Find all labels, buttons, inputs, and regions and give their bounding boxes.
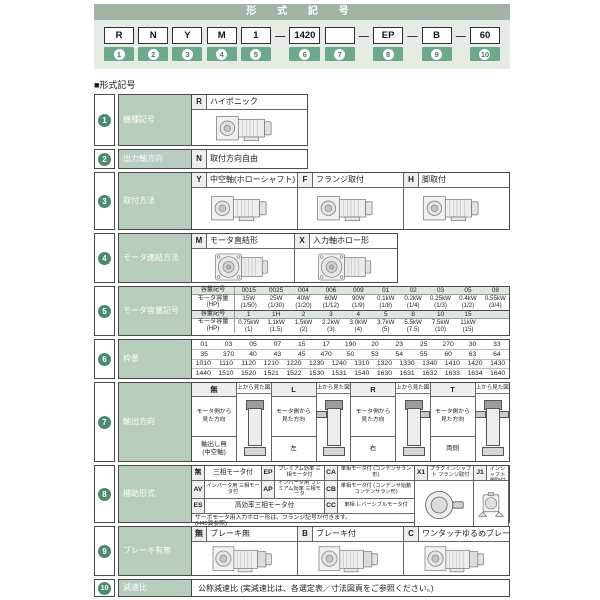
capacity-value-cell: 25W (1/30) xyxy=(262,295,289,309)
frame-number: 1330 xyxy=(396,360,419,367)
motor-base-shape xyxy=(323,447,345,456)
code-cell: EP xyxy=(262,466,275,481)
capacity-value-cell: 3.0kW (4) xyxy=(345,319,372,333)
view-from-motor-label: モータ側から 見た方向 xyxy=(192,397,236,437)
capacity-code-cell: 10 xyxy=(427,311,454,318)
code-desc: ブレーキ付 xyxy=(313,527,403,541)
frame-number: 1230 xyxy=(305,360,328,367)
gearmotor-side-image xyxy=(192,110,307,148)
dash-separator: — xyxy=(275,31,285,42)
capacity-code-cell: 2 xyxy=(290,311,317,318)
code-box-stack: R 1 xyxy=(104,27,134,61)
capacity-code-cell: 004 xyxy=(290,287,317,294)
code-desc: フランジ取付 xyxy=(313,173,403,187)
code-cell: AV xyxy=(192,481,205,499)
frame-number: 05 xyxy=(241,341,265,348)
frame-number: 370 xyxy=(216,351,240,358)
code-badge-7: 7 xyxy=(325,47,355,61)
code-desc: 取付方向自由 xyxy=(207,150,307,168)
frame-number: 43 xyxy=(265,351,289,358)
code-desc: インバータ用 三相モータ付 xyxy=(205,481,262,499)
row-auxiliary-type: 8 補助形式 無 三相モータ付 EP プレミアム効率 三相モータ付 CA 単相モ… xyxy=(94,465,510,523)
code-desc: モータ直結形 xyxy=(207,234,294,248)
row-machine-type: 1 機種記号 R ハイポニック xyxy=(94,94,510,146)
coupling-option: M モータ直結形 xyxy=(192,234,295,282)
frame-number: 64 xyxy=(485,351,509,358)
shaft-direction-option: T モータ側から 見た方向 両側 上から見た図 xyxy=(431,383,510,461)
code-box-5: 1 xyxy=(241,27,271,44)
capacity-section-2: 容量記号 11H234581015 モータ容量 (HP) xyxy=(192,311,509,334)
motor-body-shape xyxy=(407,408,421,446)
code-box-9: B xyxy=(422,27,452,44)
direction-sublabel: (中空軸) xyxy=(202,449,225,457)
capacity-value-cell: 7.5kW (10) xyxy=(427,319,454,333)
shaft-left-stub xyxy=(475,411,486,418)
brake-option: B ブレーキ付 xyxy=(298,527,404,575)
frame-number: 1510 xyxy=(215,370,238,377)
code-cell: CC xyxy=(325,499,338,514)
capacity-code-cell: 15 xyxy=(454,311,481,318)
code-cell: J1 xyxy=(474,466,487,481)
capacity-value-cell: 90W (1/9) xyxy=(345,295,372,309)
code-box-stack: 60 10 xyxy=(470,27,500,61)
capacity-code-cell: 05 xyxy=(454,287,481,294)
code-desc: インバータ用 プレミアム効率 三相モータ xyxy=(275,481,325,499)
code-cell: N xyxy=(192,150,207,168)
code-badge-2: 2 xyxy=(138,47,168,61)
code-desc: 入力軸ホロー形 xyxy=(310,234,397,248)
capacity-value-cell xyxy=(482,319,509,333)
plugin-shaft-image xyxy=(415,481,474,529)
motor-body-shape xyxy=(327,408,341,446)
capacity-value-cell: 5.5kW (7.5) xyxy=(399,319,426,333)
frame-number: 1440 xyxy=(192,370,215,377)
row-number-badge: 9 xyxy=(94,526,115,576)
direction-label: 左 xyxy=(290,445,296,453)
code-cell: AP xyxy=(262,481,275,499)
frame-number: 1632 xyxy=(418,370,441,377)
motor-base-shape xyxy=(482,447,504,456)
code-cell: CA xyxy=(325,466,338,481)
frame-number: 1410 xyxy=(441,360,464,367)
code-box-7-empty xyxy=(325,27,355,44)
brake-gearmotor-image xyxy=(298,542,403,578)
frame-number: 15 xyxy=(290,341,314,348)
frame-number: 1120 xyxy=(237,360,260,367)
row-number-badge: 4 xyxy=(94,233,115,283)
capacity-code-cell: 009 xyxy=(345,287,372,294)
capacity-code-cells: 11H234581015 xyxy=(235,311,509,318)
frame-number: 1110 xyxy=(215,360,238,367)
capacity-value-cell: 40W (1/20) xyxy=(290,295,317,309)
capacity-code-cell: 8 xyxy=(399,311,426,318)
frame-number: 1520 xyxy=(237,370,260,377)
top-view-diagram xyxy=(318,400,348,456)
capacity-value-cell: 2.2kW (3) xyxy=(317,319,344,333)
capacity-value-cell: 1.1kW (1.5) xyxy=(262,319,289,333)
frame-number: 1320 xyxy=(373,360,396,367)
code-desc: 単相モータ付 (コンデンサ始動コンデンサラン形) xyxy=(338,481,415,499)
capacity-code-cell: 3 xyxy=(317,311,344,318)
row-number-badge: 2 xyxy=(94,149,115,169)
frame-number: 23 xyxy=(387,341,411,348)
capacity-value-cell: 0.1kW (1/8) xyxy=(372,295,399,309)
row-label: 軸出方向 xyxy=(119,383,192,461)
frame-number: 01 xyxy=(192,341,216,348)
row-label: ブレーキ有無 xyxy=(119,527,192,575)
code-desc: プレミアム効率 三相モータ付 xyxy=(275,466,325,481)
gearmotor-illustration xyxy=(316,544,386,576)
frame-number: 1340 xyxy=(418,360,441,367)
frame-number: 53 xyxy=(363,351,387,358)
top-view-diagram xyxy=(477,400,507,456)
capacity-code-header: 容量記号 xyxy=(192,311,235,318)
view-from-motor-label: モータ側から 見た方向 xyxy=(351,397,395,437)
frame-number: 1634 xyxy=(464,370,487,377)
frame-number: 30 xyxy=(460,341,484,348)
frame-number: 1310 xyxy=(350,360,373,367)
top-view-diagram xyxy=(239,400,269,456)
row-reduction-ratio: 10 減速比 公称減速比 (実減速比は、各選定表／寸法図頁をご参照ください。) xyxy=(94,579,510,597)
dash-separator: — xyxy=(359,31,369,42)
capacity-code-header: 容量記号 xyxy=(192,287,235,294)
frame-number-grid: 0103050715171902023252703033 35370404345… xyxy=(192,340,509,378)
code-badge-3: 3 xyxy=(172,47,202,61)
capacity-code-cell: 03 xyxy=(427,287,454,294)
code-desc: ワンタッチゆるめブレーキ付 xyxy=(419,527,509,541)
frame-number-row: 0103050715171902023252703033 xyxy=(192,340,509,350)
view-from-motor-label: モータ側から 見た方向 xyxy=(272,397,316,437)
code-badge-9: 9 xyxy=(422,47,452,61)
row-mounting-method: 3 取付方法 Y 中空軸(ホローシャフト) xyxy=(94,172,510,230)
capacity-value-cell: 11kW (15) xyxy=(454,319,481,333)
frame-number-row: 1440151015201521152215301531154016301631… xyxy=(192,369,509,378)
row-label: 枠番 xyxy=(119,340,192,378)
frame-number: 1522 xyxy=(283,370,306,377)
capacity-value-header: モータ容量 (HP) xyxy=(192,319,235,333)
coupling-option: X 入力軸ホロー形 xyxy=(295,234,397,282)
frame-number: 63 xyxy=(460,351,484,358)
code-badge-8: 8 xyxy=(373,47,403,61)
brake-gearmotor-image xyxy=(404,542,509,578)
code-cell: X xyxy=(295,234,310,248)
code-desc: 脚取付 xyxy=(419,173,509,187)
capacity-code-cell: 1 xyxy=(235,311,262,318)
capacity-code-cell: 1H xyxy=(262,311,289,318)
frame-number: 07 xyxy=(265,341,289,348)
code-box-6: 1420 xyxy=(289,27,320,44)
code-badge-1: 1 xyxy=(104,47,134,61)
code-desc: 高効率三相モータ付 xyxy=(205,499,325,514)
code-box-stack: M 4 xyxy=(207,27,237,61)
code-cell: L xyxy=(272,383,316,397)
frame-number: 190 xyxy=(338,341,362,348)
frame-number: 40 xyxy=(241,351,265,358)
frame-number: 1540 xyxy=(350,370,373,377)
row-label: モータ連結方法 xyxy=(119,234,192,282)
frame-number: 35 xyxy=(192,351,216,358)
row-label: 補助形式 xyxy=(119,466,192,522)
code-box-10: 60 xyxy=(470,27,500,44)
gearmotor-front-image xyxy=(295,249,397,285)
shaft-direction-options: 無 モータ側から 見た方向 軸出し無 (中空軸) 上から見た図 xyxy=(192,383,509,461)
frame-number: 1531 xyxy=(328,370,351,377)
model-code-header: 形 式 記 号 R 1 N 2 Y 3 M 4 xyxy=(94,4,510,69)
capacity-value-cell: 0.75kW (1) xyxy=(235,319,262,333)
code-box-stack: 7 xyxy=(325,27,355,61)
code-box-8: EP xyxy=(373,27,403,44)
capacity-value-cell: 0.4kW (1/2) xyxy=(454,295,481,309)
code-cell: X1 xyxy=(415,466,428,481)
code-cell: C xyxy=(404,527,419,541)
view-from-motor-label: モータ側から 見た方向 xyxy=(431,397,475,437)
gearmotor-illustration xyxy=(313,251,379,283)
foot-mount-image xyxy=(474,481,509,529)
direction-label: 軸出し無 xyxy=(201,441,227,449)
frame-number: 33 xyxy=(485,341,509,348)
row-number-badge: 5 xyxy=(94,286,115,336)
shaft-direction-option: L モータ側から 見た方向 左 上から見た図 xyxy=(272,383,352,461)
row-motor-coupling: 4 モータ連結方法 M モータ直結形 xyxy=(94,233,510,283)
frame-number: 60 xyxy=(436,351,460,358)
row-number-badge: 10 xyxy=(94,579,115,597)
direction-label: 右 xyxy=(370,445,376,453)
row-label: 減速比 xyxy=(119,580,192,596)
gearmotor-illustration xyxy=(422,192,492,226)
capacity-section-1: 容量記号 001500250040060090102030508 モータ容量 (… xyxy=(192,287,509,311)
code-cell: Y xyxy=(192,173,207,187)
capacity-code-cell: 4 xyxy=(345,311,372,318)
mounting-option: Y 中空軸(ホローシャフト) xyxy=(192,173,298,229)
capacity-value-cell: 0.55kW (3/4) xyxy=(482,295,509,309)
code-cell: CB xyxy=(325,481,338,499)
code-desc: 単相 レバーシブルモータ付 xyxy=(338,499,415,514)
capacity-code-cell: 5 xyxy=(372,311,399,318)
row-number-badge: 1 xyxy=(94,94,115,146)
brake-options: 無 ブレーキ無 xyxy=(192,527,509,575)
row-frame-number: 6 枠番 0103050715171902023252703033 353704… xyxy=(94,339,510,379)
code-box-stack: 1 5 xyxy=(241,27,271,61)
frame-number: 1430 xyxy=(486,360,509,367)
code-cell: B xyxy=(298,527,313,541)
direction-label: 両側 xyxy=(446,445,459,453)
frame-number: 20 xyxy=(363,341,387,348)
capacity-code-cell xyxy=(482,311,509,318)
plugin-shaft-illustration xyxy=(420,487,468,523)
model-code-bar: R 1 N 2 Y 3 M 4 1 5 — xyxy=(104,27,500,61)
catalog-page: 形 式 記 号 R 1 N 2 Y 3 M 4 xyxy=(94,4,510,597)
frame-number: 1210 xyxy=(260,360,283,367)
motor-body-shape xyxy=(486,408,500,446)
shaft-direction-option: R モータ側から 見た方向 右 上から見た図 xyxy=(351,383,431,461)
code-cell: 無 xyxy=(192,527,207,541)
frame-number: 1521 xyxy=(260,370,283,377)
code-cell: ES xyxy=(192,499,205,514)
code-cell: F xyxy=(298,173,313,187)
code-desc: 三相モータ付 xyxy=(205,466,262,481)
code-desc: プラグインシャフト フランジ取付 xyxy=(428,466,474,481)
code-cell: M xyxy=(192,234,207,248)
code-badge-5: 5 xyxy=(241,47,271,61)
code-cell: 無 xyxy=(192,383,236,397)
code-box-1: R xyxy=(104,27,134,44)
code-desc: プラグインシャフト 脚取付 xyxy=(487,466,509,481)
code-box-3: Y xyxy=(172,27,202,44)
capacity-code-cell: 08 xyxy=(482,287,509,294)
row-number-badge: 7 xyxy=(94,382,115,462)
gearmotor-side-image xyxy=(298,188,403,229)
capacity-value-cell: 1.5kW (2) xyxy=(290,319,317,333)
gearmotor-side-image xyxy=(404,188,509,229)
top-view-caption: 上から見た図 xyxy=(476,383,510,394)
foot-mount-illustration xyxy=(474,487,508,523)
capacity-code-cells: 001500250040060090102030508 xyxy=(235,287,509,294)
frame-number: 25 xyxy=(412,341,436,348)
row-number-badge: 3 xyxy=(94,172,115,230)
shaft-direction-option: 無 モータ側から 見た方向 軸出し無 (中空軸) 上から見た図 xyxy=(192,383,272,461)
model-code-title-band: 形 式 記 号 xyxy=(94,4,510,20)
capacity-value-header: モータ容量 (HP) xyxy=(192,295,235,309)
capacity-code-cell: 0025 xyxy=(262,287,289,294)
frame-number-row: 1010111011201210122012301240131013201330… xyxy=(192,360,509,370)
code-box-stack: EP 8 xyxy=(373,27,403,61)
top-view-caption: 上から見た図 xyxy=(317,383,351,394)
code-cell: R xyxy=(351,383,395,397)
model-code-boxes-area: R 1 N 2 Y 3 M 4 1 5 — xyxy=(94,20,510,69)
capacity-value-cells: 0.75kW (1) 1.1kW (1.5) 1.5kW (2) 2.2kW xyxy=(235,319,509,333)
row-label: モータ容量記号 xyxy=(119,287,192,335)
shaft-left-stub xyxy=(316,411,327,418)
gearmotor-illustration xyxy=(210,192,280,226)
frame-number: 50 xyxy=(338,351,362,358)
frame-number: 1010 xyxy=(192,360,215,367)
capacity-value-cell: 60W (1/12) xyxy=(317,295,344,309)
gearmotor-side-image xyxy=(192,188,297,229)
frame-number-row: 3537040434547050535455606364 xyxy=(192,350,509,360)
code-box-4: M xyxy=(207,27,237,44)
code-desc: ハイポニック xyxy=(207,95,307,109)
code-box-stack: Y 3 xyxy=(172,27,202,61)
code-cell: 無 xyxy=(192,466,205,481)
row-shaft-direction: 7 軸出方向 無 モータ側から 見た方向 軸出し無 (中空軸) xyxy=(94,382,510,462)
top-view-caption: 上から見た図 xyxy=(396,383,430,394)
frame-number: 03 xyxy=(216,341,240,348)
brake-gearmotor-image xyxy=(192,542,297,578)
frame-number: 1530 xyxy=(305,370,328,377)
capacity-code-cell: 0015 xyxy=(235,287,262,294)
capacity-code-cell: 02 xyxy=(399,287,426,294)
capacity-code-cell: 006 xyxy=(317,287,344,294)
top-view-diagram xyxy=(398,400,428,456)
frame-number: 54 xyxy=(387,351,411,358)
row-number-badge: 8 xyxy=(94,465,115,523)
capacity-value-cell: 0.2kW (1/4) xyxy=(399,295,426,309)
frame-number: 55 xyxy=(412,351,436,358)
capacity-code-cell: 01 xyxy=(372,287,399,294)
code-box-stack: 1420 6 xyxy=(289,27,320,61)
code-desc: 中空軸(ホローシャフト) xyxy=(207,173,297,187)
code-desc: 単相モータ付 (コンデンサラン形) xyxy=(338,466,415,481)
code-box-stack: N 2 xyxy=(138,27,168,61)
frame-number: 1420 xyxy=(464,360,487,367)
row-output-shaft-direction: 2 出力軸方向 N 取付方向自由 xyxy=(94,149,510,169)
capacity-value-cell: 0.25kW (1/3) xyxy=(427,295,454,309)
gearmotor-front-image xyxy=(192,249,294,285)
frame-number: 45 xyxy=(290,351,314,358)
code-box-2: N xyxy=(138,27,168,44)
coupling-options: M モータ直結形 xyxy=(192,234,397,282)
frame-number: 1630 xyxy=(373,370,396,377)
gearmotor-illustration xyxy=(215,112,285,146)
row-brake: 9 ブレーキ有無 無 ブレーキ無 xyxy=(94,526,510,576)
code-cell: R xyxy=(192,95,207,109)
code-cell: H xyxy=(404,173,419,187)
capacity-value-cell: 15W (1/50) xyxy=(235,295,262,309)
row-label: 取付方法 xyxy=(119,173,192,229)
top-view-caption: 上から見た図 xyxy=(237,383,271,394)
brake-option: C ワンタッチゆるめブレーキ付 xyxy=(404,527,509,575)
frame-number: 1631 xyxy=(396,370,419,377)
row-label: 機種記号 xyxy=(119,95,192,145)
motor-body-shape xyxy=(248,408,262,446)
code-badge-6: 6 xyxy=(289,47,320,61)
gearmotor-illustration xyxy=(210,544,280,576)
gearmotor-illustration xyxy=(210,251,276,283)
capacity-value-cell: 3.7kW (5) xyxy=(372,319,399,333)
code-cell: T xyxy=(431,383,475,397)
frame-number: 1220 xyxy=(283,360,306,367)
code-badge-10: 10 xyxy=(470,47,500,61)
motor-base-shape xyxy=(403,447,425,456)
row-motor-capacity: 5 モータ容量記号 容量記号 0015002500400600901020305… xyxy=(94,286,510,336)
code-desc: ブレーキ無 xyxy=(207,527,297,541)
mounting-option: H 脚取付 xyxy=(404,173,509,229)
gearmotor-illustration xyxy=(422,544,492,576)
dash-separator: — xyxy=(456,31,466,42)
section-label: ■形式記号 xyxy=(94,78,510,91)
motor-base-shape xyxy=(244,447,266,456)
frame-number: 270 xyxy=(436,341,460,348)
mounting-option: F フランジ取付 xyxy=(298,173,404,229)
frame-number: 17 xyxy=(314,341,338,348)
row-label: 出力軸方向 xyxy=(119,150,192,168)
row-number-badge: 6 xyxy=(94,339,115,379)
code-badge-4: 4 xyxy=(207,47,237,61)
frame-number: 1640 xyxy=(486,370,509,377)
reduction-ratio-text: 公称減速比 (実減速比は、各選定表／寸法図頁をご参照ください。) xyxy=(192,580,509,596)
frame-number: 470 xyxy=(314,351,338,358)
brake-option: 無 ブレーキ無 xyxy=(192,527,298,575)
mounting-options: Y 中空軸(ホローシャフト) xyxy=(192,173,509,229)
auxiliary-type-grid: 無 三相モータ付 EP プレミアム効率 三相モータ付 CA 単相モータ付 (コン… xyxy=(192,466,509,529)
dash-separator: — xyxy=(407,31,417,42)
capacity-value-cells: 15W (1/50) 25W (1/30) 40W (1/20) 60W xyxy=(235,295,509,309)
frame-number: 1633 xyxy=(441,370,464,377)
frame-number: 1240 xyxy=(328,360,351,367)
code-box-stack: B 9 xyxy=(422,27,452,61)
gearmotor-illustration xyxy=(316,192,386,226)
